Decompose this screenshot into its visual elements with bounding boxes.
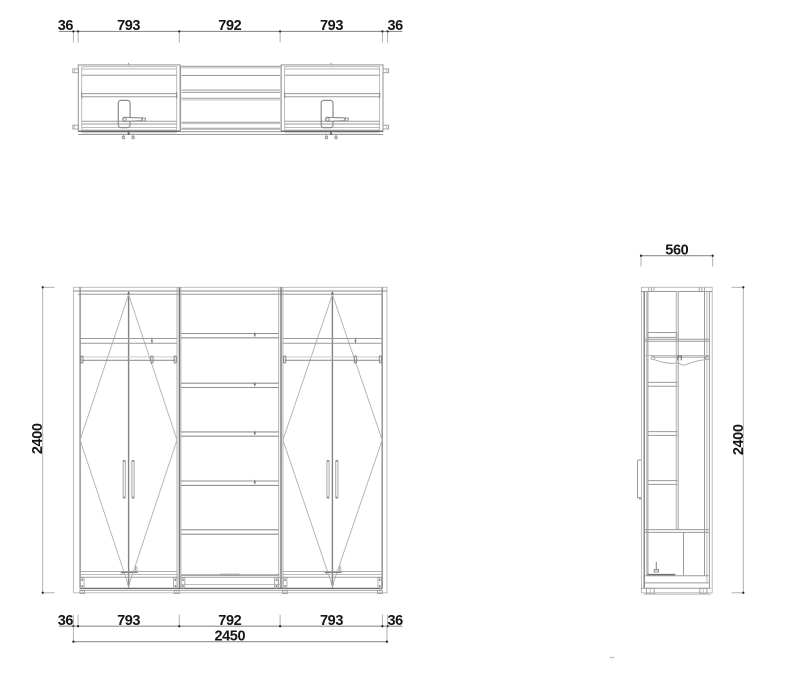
svg-text:36: 36 <box>58 613 74 629</box>
svg-text:36: 36 <box>58 18 74 34</box>
svg-text:2400: 2400 <box>30 423 46 454</box>
svg-text:793: 793 <box>320 613 343 629</box>
svg-text:560: 560 <box>665 242 688 258</box>
svg-text:793: 793 <box>117 18 140 34</box>
svg-text:793: 793 <box>320 18 343 34</box>
svg-text:36: 36 <box>388 613 404 629</box>
svg-text:2400: 2400 <box>731 424 747 455</box>
svg-text:36: 36 <box>388 18 404 34</box>
svg-text:2450: 2450 <box>214 628 245 644</box>
svg-text:792: 792 <box>218 613 241 629</box>
svg-text:792: 792 <box>218 18 241 34</box>
svg-text:793: 793 <box>117 613 140 629</box>
